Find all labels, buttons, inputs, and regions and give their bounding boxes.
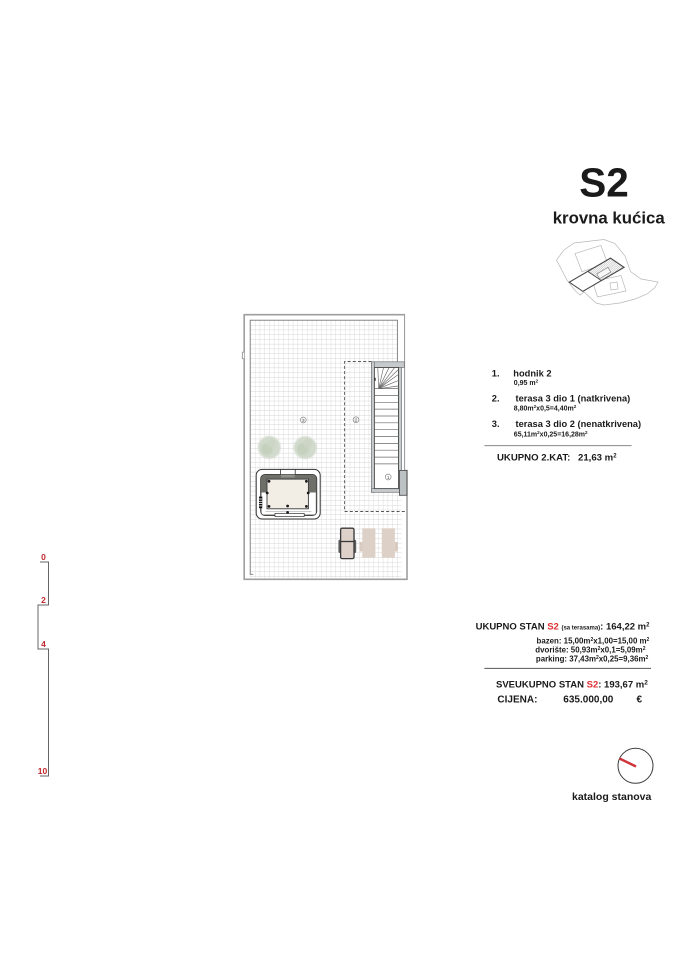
svg-text:SVEUKUPNO STAN S2: 193,67 m2: SVEUKUPNO STAN S2: 193,67 m2	[496, 680, 648, 691]
svg-text:0: 0	[41, 552, 46, 562]
svg-text:2.: 2.	[492, 394, 500, 404]
svg-text:parking: 37,43m2x0,25=9,36m2: parking: 37,43m2x0,25=9,36m2	[536, 655, 649, 664]
svg-text:terasa 3 dio 1 (natkrivena): terasa 3 dio 1 (natkrivena)	[516, 394, 631, 404]
svg-text:1.: 1.	[492, 368, 500, 378]
svg-text:3.: 3.	[492, 419, 500, 429]
svg-text:katalog stanova: katalog stanova	[572, 791, 652, 803]
svg-text:hodnik 2: hodnik 2	[513, 368, 551, 378]
svg-text:dvorište: 50,93m2x0,1=5,09m2: dvorište: 50,93m2x0,1=5,09m2	[535, 646, 645, 655]
svg-text:CIJENA:635.000,00€: CIJENA:635.000,00€	[497, 694, 642, 705]
svg-text:S2: S2	[579, 160, 629, 206]
svg-text:terasa 3 dio 2 (nenatkrivena): terasa 3 dio 2 (nenatkrivena)	[516, 419, 642, 429]
svg-text:UKUPNO STAN S2 (sa terasama):: UKUPNO STAN S2 (sa terasama): 164,22 m2	[476, 621, 651, 632]
svg-text:krovna kućica: krovna kućica	[553, 209, 666, 228]
svg-text:8,80m2x0,5=4,40m2: 8,80m2x0,5=4,40m2	[514, 404, 577, 413]
svg-text:UKUPNO 2.KAT: 21,63 m2: UKUPNO 2.KAT: 21,63 m2	[497, 453, 617, 464]
svg-text:bazen: 15,00m2x1,00=15,00 m2: bazen: 15,00m2x1,00=15,00 m2	[537, 637, 650, 646]
svg-text:2: 2	[41, 595, 46, 605]
svg-text:4: 4	[41, 639, 46, 649]
svg-text:65,11m2x0,25=16,28m2: 65,11m2x0,25=16,28m2	[514, 430, 588, 439]
svg-text:10: 10	[38, 766, 48, 776]
svg-text:0,95 m2: 0,95 m2	[514, 379, 539, 388]
